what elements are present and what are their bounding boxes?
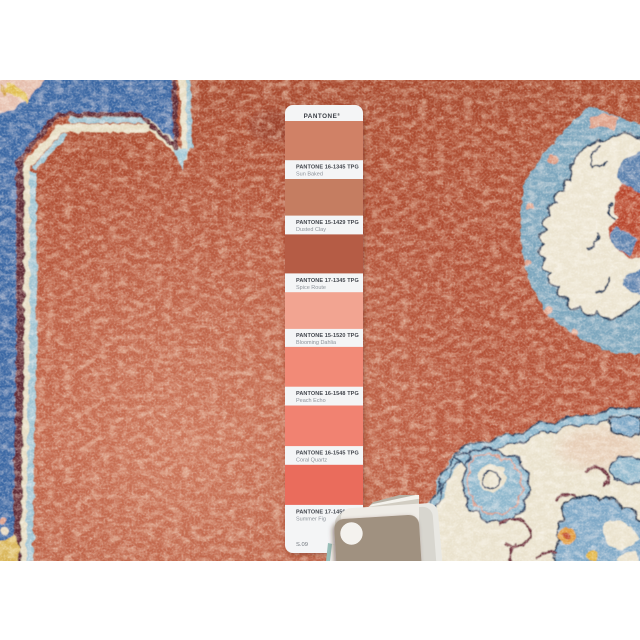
svg-text:PANTONE 15-1429 TPG: PANTONE 15-1429 TPG [296,220,359,226]
svg-text:PANTONE 16-1545 TPG: PANTONE 16-1545 TPG [296,451,359,457]
svg-text:S.09: S.09 [296,542,308,548]
svg-text:Coral Quartz: Coral Quartz [296,458,327,464]
svg-text:PANTONE 15-1520 TPG: PANTONE 15-1520 TPG [296,333,359,339]
svg-text:PANTONE 16-1548 TPG: PANTONE 16-1548 TPG [296,391,359,397]
svg-text:Dusted Clay: Dusted Clay [296,227,326,233]
svg-text:PANTONE 16-1345 TPG: PANTONE 16-1345 TPG [296,165,359,171]
svg-text:PANTONE®: PANTONE® [304,113,341,120]
svg-text:Spice Route: Spice Route [296,285,326,291]
svg-text:Peach Echo: Peach Echo [296,398,326,404]
svg-text:PANTONE 17-1345 TPG: PANTONE 17-1345 TPG [296,278,359,284]
svg-text:Sun Baked: Sun Baked [296,172,323,178]
svg-text:Blooming Dahlia: Blooming Dahlia [296,340,337,346]
svg-text:Summer Fig: Summer Fig [296,517,326,523]
